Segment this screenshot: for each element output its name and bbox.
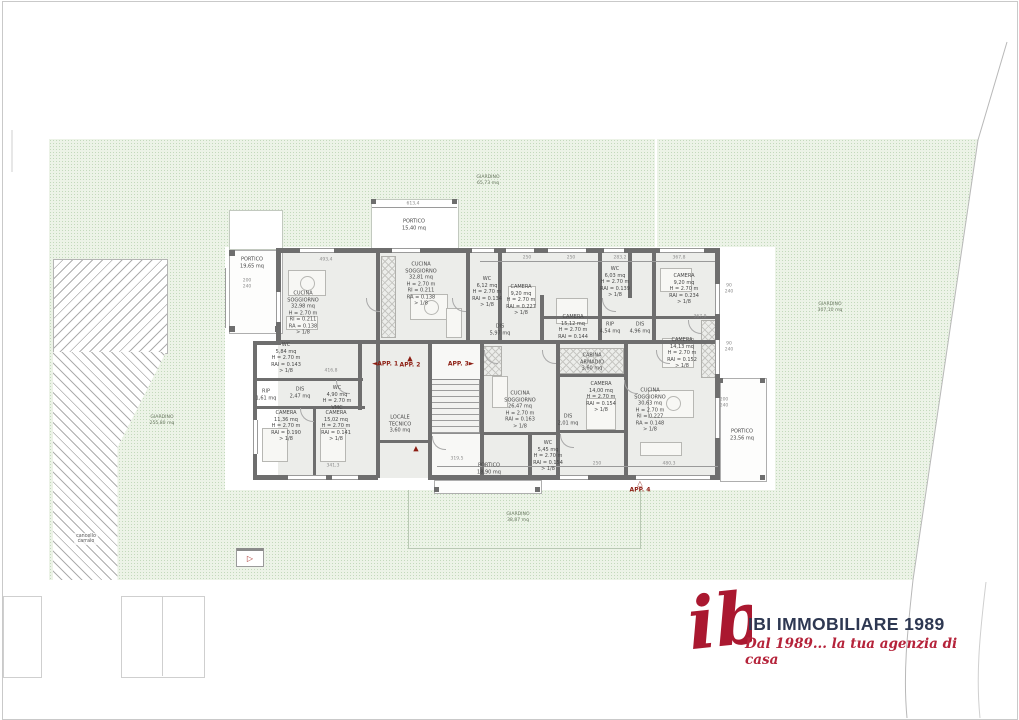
dimension-text-5: 367,8	[673, 256, 686, 261]
marker-entry-arrow: ▲	[413, 446, 418, 453]
room-label-wc-545: WC 5,45 mq H = 2.70 m RAI = 0.154 > 1/8	[533, 440, 563, 473]
wall-11	[652, 253, 656, 344]
furniture-4	[446, 308, 462, 338]
dimension-text-16: 319,5	[451, 457, 464, 462]
wall-36	[760, 378, 765, 383]
parking-rect-2	[121, 596, 205, 678]
portico-1890-outline	[434, 480, 542, 494]
wall-32	[275, 326, 281, 332]
wall-22	[480, 344, 484, 478]
pedestrian-gate: ▷	[236, 548, 264, 567]
window-h-10	[636, 475, 692, 480]
wall-25	[556, 374, 626, 377]
room-label-dis-496: DIS 4,96 mq	[630, 322, 651, 335]
window-h-8	[332, 475, 358, 480]
garden-label-garden-right: GIARDINO 307,10 mq	[818, 302, 843, 314]
window-h-9	[560, 475, 588, 480]
driveway-upper	[53, 259, 168, 354]
window-h-11	[692, 475, 710, 480]
marker-arrow-icon: ►	[469, 361, 474, 368]
wall-8	[466, 253, 470, 344]
room-label-portico-1890: PORTICO 18,90 mq	[477, 463, 501, 476]
room-label-wc-490: WC 4,90 mq H = 2.70 m VMC	[323, 385, 352, 411]
room-label-dis-201: DIS 2,01 mq	[558, 414, 579, 427]
room-label-camera-1136: CAMERA 11,36 mq H = 2.70 m RAI = 0.190 >…	[271, 410, 301, 443]
dimension-line-1	[480, 261, 715, 262]
table-2	[666, 396, 681, 411]
marker-label: APP. 2	[400, 363, 421, 369]
room-label-wc-584: WC 5,84 mq H = 2.70 m RAI = 0.143 > 1/8	[271, 342, 301, 375]
room-label-portico-top: PORTICO 15,40 mq	[402, 219, 426, 232]
window-v-1	[715, 340, 720, 374]
room-label-camera-1400: CAMERA 14,00 mq H = 2.70 m RAI = 0.154 >…	[586, 381, 616, 414]
room-label-portico-2356: PORTICO 23,56 mq	[730, 429, 754, 442]
dimension-line-3	[225, 268, 226, 328]
wall-27	[480, 432, 558, 435]
dimension-text-4: 283,2	[614, 256, 627, 261]
dimension-line-0	[372, 207, 457, 208]
dimension-text-8: 90	[726, 284, 732, 289]
room-label-cucina-app2: CUCINA SOGGIORNO 32,81 mq H = 2.70 m RI …	[405, 261, 436, 307]
window-h-5	[604, 248, 624, 253]
portico-left-top-area	[229, 210, 283, 250]
room-label-camera-1413: CAMERA 14,13 mq H = 2.70 m RAI = 0.152 >…	[667, 337, 697, 370]
wall-29	[376, 440, 430, 443]
dimension-text-2: 250	[523, 256, 532, 261]
wall-34	[452, 199, 457, 204]
wall-13	[540, 295, 544, 344]
dimension-text-12: 200	[720, 398, 729, 403]
marker-app-2: ▲APP. 2	[400, 356, 421, 369]
window-h-0	[300, 248, 334, 253]
window-h-3	[506, 248, 534, 253]
room-label-camera-1512: CAMERA 15,12 mq H = 2.70 m RAI = 0.144	[558, 314, 588, 340]
dimension-text-19: 367,9	[694, 315, 707, 320]
dimension-text-13: 240	[720, 404, 729, 409]
marker-app-4: △APP. 4	[630, 481, 651, 494]
garden-divider	[655, 139, 657, 247]
room-label-camera-920r: CAMERA 9,20 mq H = 2.70 m RAI = 0.234 > …	[669, 273, 699, 306]
dimension-text-15: 341,3	[327, 464, 340, 469]
window-v-0	[715, 284, 720, 314]
furniture-6	[640, 442, 682, 456]
window-h-7	[288, 475, 326, 480]
marker-label: APP. 4	[630, 488, 651, 494]
wall-24	[624, 344, 628, 478]
room-label-cucina-app5: CUCINA SOGGIORNO 30,63 mq H = 2.70 m RI …	[634, 387, 665, 433]
wardrobe-0	[381, 256, 396, 338]
wall-39	[535, 487, 540, 492]
room-label-dis-597: DIS 5,97 mq	[490, 324, 511, 337]
site-plan-canvas: cancello carraio ▷ ib IBI IMMOBILIARE 19…	[0, 0, 1019, 720]
room-label-cucina-app1: CUCINA SOGGIORNO 32,98 mq H = 2.70 m RI …	[287, 290, 318, 336]
logo-title: IBI IMMOBILIARE 1989	[748, 614, 988, 635]
wall-37	[760, 475, 765, 480]
dimension-text-18: 480,3	[663, 462, 676, 467]
gate-label: cancello carraio	[74, 533, 98, 545]
window-h-6	[660, 248, 704, 253]
room-label-wc-612: WC 6,12 mq H = 2.70 m RAI = 0.134 > 1/8	[472, 276, 502, 309]
wardrobe-1	[701, 320, 716, 378]
wall-35	[718, 378, 723, 383]
fence-right	[640, 490, 641, 548]
window-h-4	[548, 248, 586, 253]
room-label-wc-603: WC 6,03 mq H = 2.70 m RAI = 0.139 > 1/8	[600, 266, 630, 299]
gate-arrow-icon: ▷	[247, 555, 253, 563]
room-label-rip-454: RIP 4,54 mq	[600, 322, 621, 335]
table-0	[300, 276, 315, 291]
room-label-camera-1502: CAMERA 15,02 mq H = 2.70 m RAI = 0.141 >…	[321, 410, 351, 443]
svg-text:ib: ib	[690, 580, 752, 666]
wall-19	[358, 340, 362, 410]
room-label-rip-161: RIP 1,61 mq	[256, 389, 277, 402]
room-label-portico-tl: PORTICO 19,65 mq	[240, 257, 264, 270]
marker-arrow-icon: ▲	[413, 446, 418, 453]
dimension-text-10: 90	[726, 342, 732, 347]
window-v-3	[253, 420, 258, 454]
dimension-text-7: 240	[243, 285, 252, 290]
room-label-locale-tecnico: LOCALE TECNICO 3,60 mq	[389, 414, 411, 434]
window-v-4	[276, 292, 281, 322]
room-label-cabina-armadio: CABINA ARMADIO 3,60 mq	[580, 352, 604, 372]
marker-app-1: ◄APP. 1	[372, 361, 398, 368]
staircase	[431, 379, 480, 434]
marker-label: APP. 3	[448, 361, 469, 367]
garden-label-garden-top: GIARDINO 65,73 mq	[476, 175, 499, 187]
dimension-text-6: 200	[243, 279, 252, 284]
wall-3	[253, 341, 257, 480]
wall-14	[278, 340, 720, 344]
wall-21	[428, 344, 432, 478]
dimension-text-0: 613,4	[407, 202, 420, 207]
dimension-text-3: 250	[567, 256, 576, 261]
garden-label-garden-bottom: GIARDINO 38,87 mq	[506, 512, 529, 524]
parking-divider	[162, 596, 163, 676]
wall-26	[556, 430, 626, 433]
marker-label: APP. 1	[377, 361, 398, 367]
room-label-cucina-app4: CUCINA SOGGIORNO 26,47 mq H = 2.70 m RAI…	[504, 391, 535, 430]
logo-monogram-icon: ib	[690, 580, 752, 666]
parking-rect-1	[3, 596, 42, 678]
logo-tagline: Dal 1989... la tua agenzia di casa	[745, 636, 990, 668]
garden-label-garden-left: GIARDINO 255,80 mq	[150, 415, 175, 427]
wall-31	[229, 326, 235, 332]
agency-logo: ib IBI IMMOBILIARE 1989 Dal 1989... la t…	[690, 584, 990, 674]
fence-left	[408, 490, 409, 548]
wall-33	[371, 199, 376, 204]
window-h-2	[472, 248, 494, 253]
marker-app-3: APP. 3►	[448, 361, 474, 368]
room-label-dis-247: DIS 2,47 mq	[290, 387, 311, 400]
room-label-camera-920l: CAMERA 9,20 mq H = 2.70 m RAI = 0.227 > …	[506, 284, 536, 317]
wall-38	[434, 487, 439, 492]
dimension-text-17: 250	[593, 462, 602, 467]
fence-bottom	[408, 548, 641, 549]
wall-30	[229, 250, 235, 256]
dimension-text-11: 240	[725, 348, 734, 353]
dimension-text-1: 493,4	[320, 258, 333, 263]
dimension-text-9: 240	[725, 290, 734, 295]
dimension-text-14: 416,8	[325, 369, 338, 374]
wall-28	[528, 434, 532, 478]
window-h-1	[392, 248, 420, 253]
